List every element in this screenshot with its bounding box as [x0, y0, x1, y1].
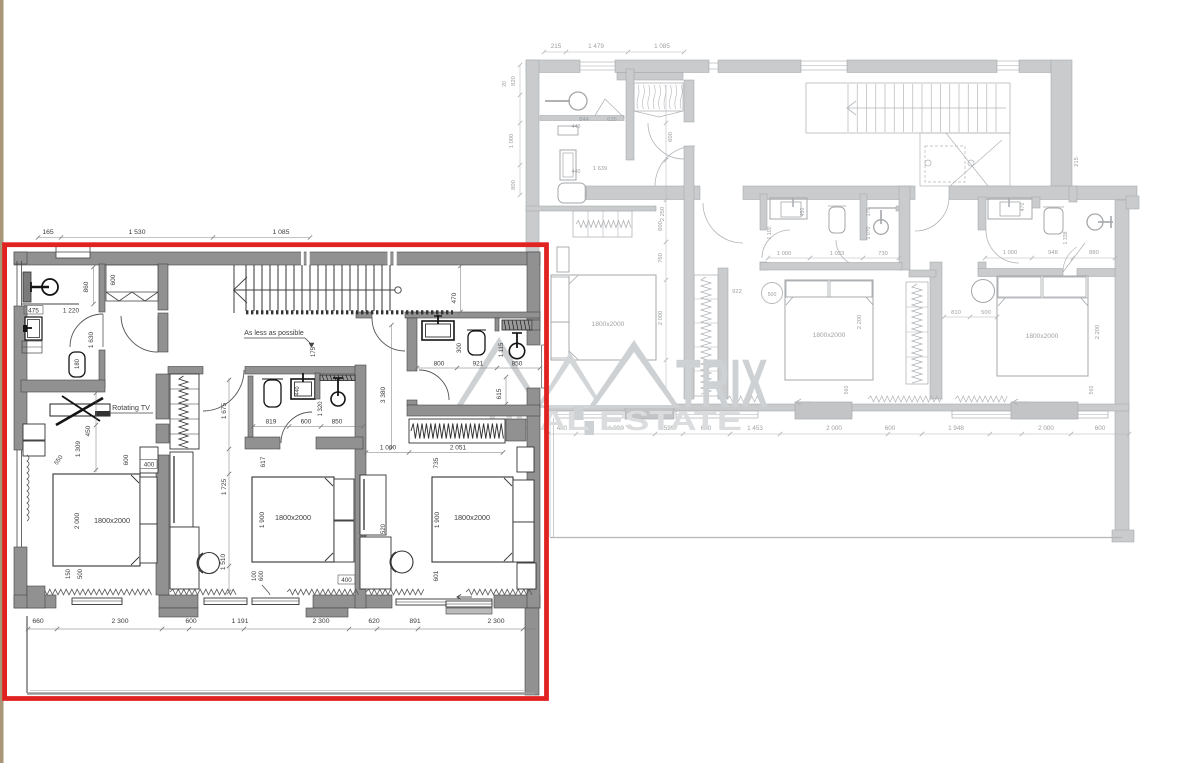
svg-text:170: 170	[866, 208, 872, 217]
svg-text:600: 600	[1095, 425, 1106, 432]
svg-text:2 200: 2 200	[1095, 325, 1101, 340]
svg-text:1 630: 1 630	[88, 331, 95, 348]
svg-text:600: 600	[123, 454, 130, 465]
svg-text:1 085: 1 085	[272, 229, 289, 236]
svg-text:Rotating TV: Rotating TV	[112, 403, 150, 412]
svg-text:860: 860	[83, 281, 90, 292]
svg-text:450: 450	[800, 208, 806, 217]
svg-text:1 725: 1 725	[221, 478, 228, 495]
svg-text:1800x2000: 1800x2000	[94, 516, 130, 525]
svg-text:735: 735	[433, 457, 440, 468]
svg-text:600: 600	[658, 221, 664, 231]
svg-text:1 115: 1 115	[499, 342, 505, 357]
svg-text:1 530: 1 530	[128, 229, 145, 236]
svg-text:1 309: 1 309	[75, 440, 82, 457]
svg-text:400: 400	[341, 577, 352, 584]
svg-text:500: 500	[78, 568, 84, 579]
svg-text:635: 635	[607, 117, 617, 123]
svg-text:1 510: 1 510	[220, 553, 227, 570]
svg-text:1 900: 1 900	[259, 511, 266, 528]
svg-text:891: 891	[409, 618, 421, 625]
svg-text:850: 850	[332, 419, 343, 426]
svg-text:948: 948	[1048, 250, 1058, 256]
svg-text:660: 660	[32, 618, 44, 625]
svg-text:922: 922	[732, 289, 742, 295]
svg-text:1 338: 1 338	[1063, 231, 1069, 244]
svg-text:180: 180	[75, 358, 81, 369]
svg-text:440: 440	[572, 169, 581, 175]
svg-text:800: 800	[511, 180, 517, 190]
svg-text:2 000: 2 000	[74, 512, 81, 529]
svg-text:1 900: 1 900	[434, 511, 441, 528]
svg-text:500: 500	[768, 292, 777, 298]
svg-text:600: 600	[110, 274, 117, 285]
svg-text:1 479: 1 479	[588, 43, 604, 50]
svg-text:819: 819	[266, 419, 277, 426]
svg-text:601: 601	[433, 570, 440, 581]
svg-text:1 000: 1 000	[509, 134, 515, 149]
svg-text:2 250: 2 250	[660, 207, 666, 222]
svg-text:620: 620	[368, 618, 380, 625]
svg-text:2 051: 2 051	[450, 445, 467, 452]
svg-text:880: 880	[1089, 250, 1099, 256]
svg-text:500: 500	[981, 310, 991, 316]
svg-text:215: 215	[1074, 157, 1080, 167]
svg-text:1800x2000: 1800x2000	[454, 513, 490, 522]
svg-text:20: 20	[502, 81, 508, 87]
svg-text:400: 400	[144, 462, 155, 469]
svg-text:1 085: 1 085	[654, 43, 670, 50]
svg-text:2 200: 2 200	[857, 315, 863, 330]
svg-text:440: 440	[572, 124, 581, 130]
svg-text:2 000: 2 000	[826, 425, 842, 432]
svg-text:1 453: 1 453	[747, 425, 763, 432]
svg-text:2 000: 2 000	[658, 311, 664, 326]
svg-text:1 639: 1 639	[593, 166, 608, 172]
svg-text:600: 600	[668, 132, 674, 142]
svg-text:600: 600	[301, 419, 312, 426]
svg-text:1800x2000: 1800x2000	[275, 513, 311, 522]
svg-text:600: 600	[885, 425, 896, 432]
svg-text:165: 165	[42, 229, 54, 236]
svg-text:440: 440	[295, 386, 301, 395]
svg-text:2 000: 2 000	[1038, 425, 1054, 432]
svg-text:1 220: 1 220	[63, 308, 80, 315]
svg-text:2 300: 2 300	[487, 618, 504, 625]
svg-text:810: 810	[951, 310, 961, 316]
svg-text:1 033: 1 033	[830, 251, 845, 257]
svg-text:850: 850	[512, 361, 523, 368]
svg-text:560: 560	[844, 386, 850, 395]
svg-text:1 100: 1 100	[767, 226, 773, 239]
svg-text:470: 470	[451, 292, 458, 303]
svg-text:844: 844	[579, 117, 589, 123]
svg-text:470: 470	[1020, 203, 1026, 212]
svg-text:2 300: 2 300	[111, 618, 128, 625]
svg-text:3 380: 3 380	[380, 386, 387, 403]
svg-text:1 675: 1 675	[221, 402, 228, 419]
svg-text:As less as possible: As less as possible	[244, 330, 304, 337]
svg-text:520: 520	[381, 523, 387, 534]
svg-text:1 000: 1 000	[777, 251, 792, 257]
svg-text:730: 730	[878, 251, 888, 257]
svg-text:617: 617	[260, 456, 267, 467]
svg-text:450: 450	[85, 425, 92, 436]
svg-text:921: 921	[473, 361, 484, 368]
svg-text:1800x2000: 1800x2000	[813, 332, 846, 339]
svg-text:300: 300	[457, 342, 463, 353]
svg-text:820: 820	[511, 76, 517, 86]
svg-text:175: 175	[311, 346, 317, 357]
svg-text:475: 475	[28, 308, 39, 315]
svg-text:100: 100	[252, 570, 258, 581]
svg-text:1800x2000: 1800x2000	[1026, 333, 1059, 340]
svg-text:1 191: 1 191	[231, 618, 248, 625]
svg-text:760: 760	[658, 253, 664, 263]
svg-text:1 060: 1 060	[380, 445, 397, 452]
svg-text:560: 560	[1089, 386, 1095, 395]
svg-text:1 070: 1 070	[866, 226, 872, 239]
svg-text:215: 215	[551, 43, 562, 50]
svg-text:2 300: 2 300	[312, 618, 329, 625]
svg-text:600: 600	[185, 618, 197, 625]
svg-text:600: 600	[259, 570, 265, 581]
svg-text:1800x2000: 1800x2000	[592, 321, 625, 328]
svg-text:1 320: 1 320	[318, 401, 324, 417]
svg-text:1 948: 1 948	[948, 425, 964, 432]
svg-text:1 000: 1 000	[1003, 250, 1018, 256]
svg-text:800: 800	[434, 361, 445, 368]
svg-text:615: 615	[496, 388, 503, 399]
svg-text:150: 150	[66, 568, 72, 579]
